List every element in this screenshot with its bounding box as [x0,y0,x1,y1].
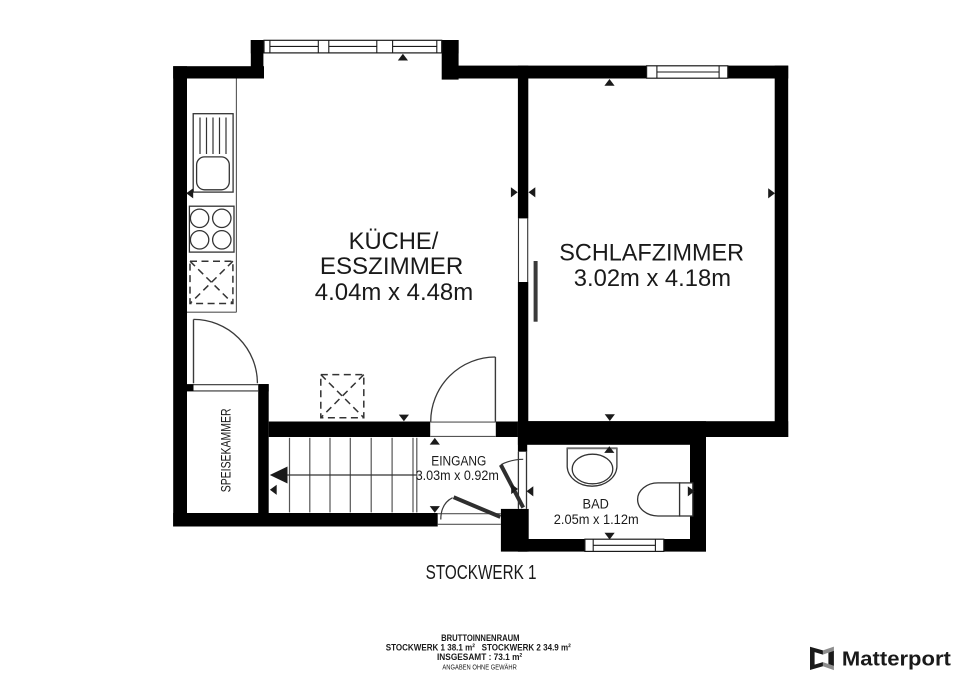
svg-text:SCHLAFZIMMER: SCHLAFZIMMER [559,239,744,266]
svg-text:BRUTTOINNENRAUM: BRUTTOINNENRAUM [441,633,520,643]
svg-text:SPEISEKAMMER: SPEISEKAMMER [217,409,233,493]
svg-text:3.02m x 4.18m: 3.02m x 4.18m [574,265,731,292]
svg-text:EINGANG: EINGANG [431,454,486,469]
svg-text:4.04m x 4.48m: 4.04m x 4.48m [315,279,473,306]
svg-text:KÜCHE/: KÜCHE/ [349,228,439,255]
svg-text:2.05m x 1.12m: 2.05m x 1.12m [554,512,639,527]
svg-text:STOCKWERK 1: STOCKWERK 1 [426,562,537,584]
svg-text:3.03m x 0.92m: 3.03m x 0.92m [416,468,499,483]
svg-text:ANGABEN OHNE GEWÄHR: ANGABEN OHNE GEWÄHR [442,663,517,672]
svg-text:BAD: BAD [583,497,610,512]
svg-text:INSGESAMT : 73.1 m²: INSGESAMT : 73.1 m² [437,652,522,662]
svg-text:ESSZIMMER: ESSZIMMER [320,253,464,280]
svg-text:Matterport: Matterport [842,648,951,670]
